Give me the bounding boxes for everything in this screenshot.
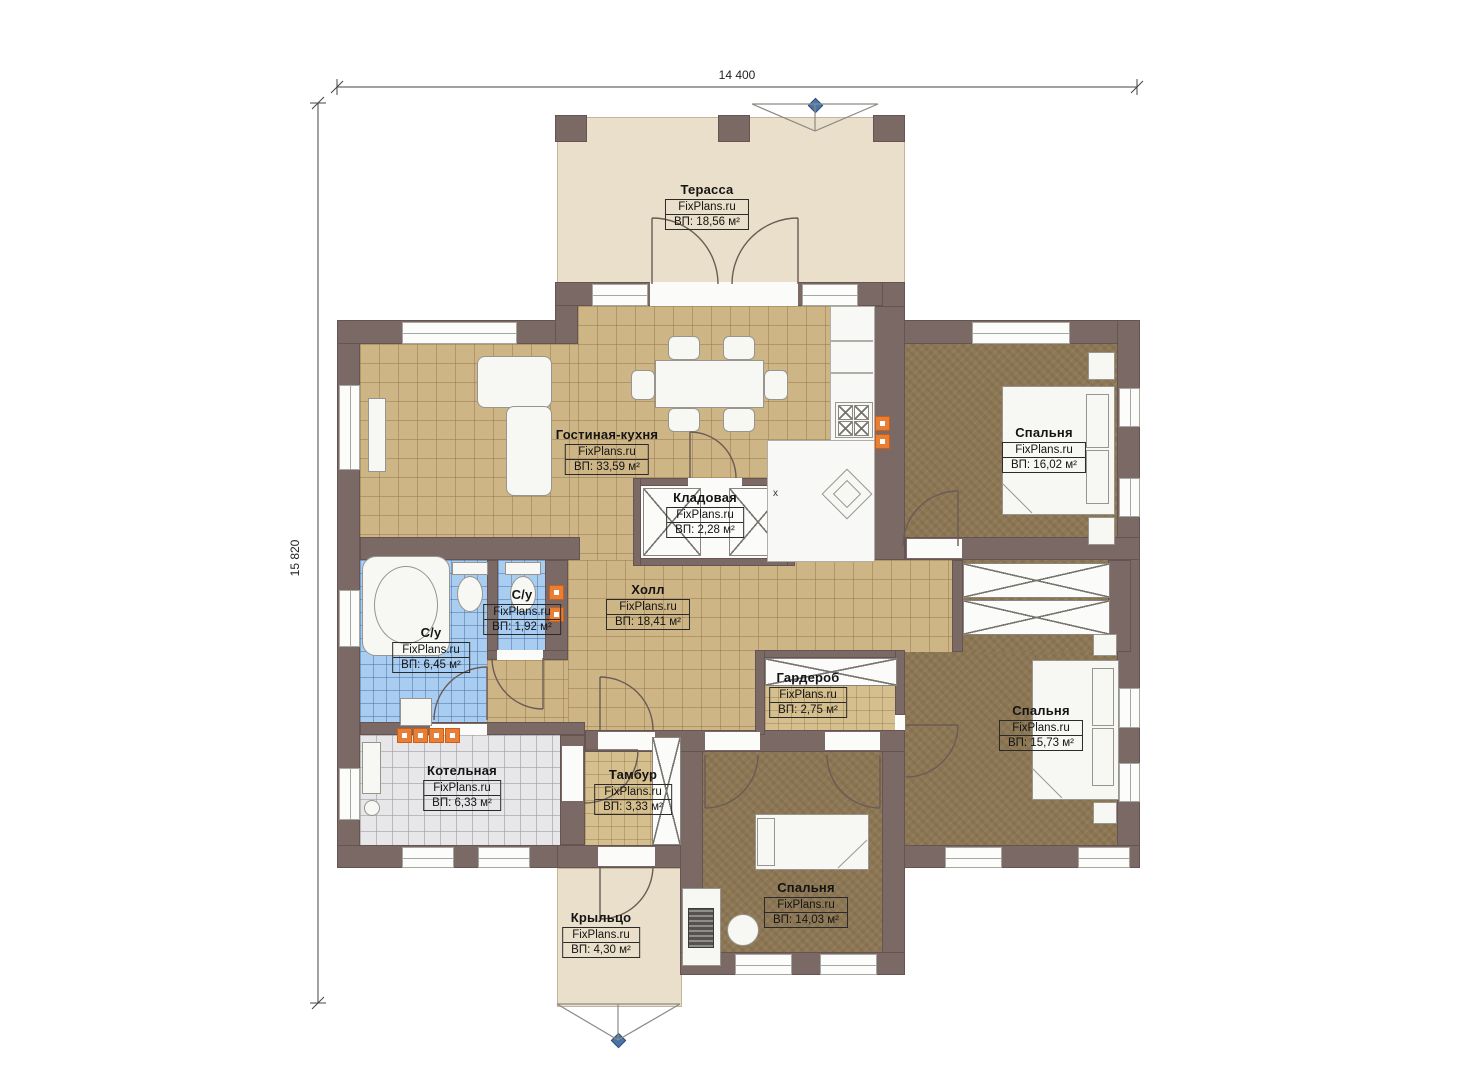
room-info-box: FixPlans.ru ВП: 16,02 м² xyxy=(1002,442,1086,473)
radiator-marker xyxy=(429,728,444,743)
room-info-box: FixPlans.ru ВП: 18,56 м² xyxy=(665,199,749,230)
room-name: Гостиная-кухня xyxy=(556,427,658,442)
stove-burner xyxy=(854,421,869,436)
wall xyxy=(755,650,765,735)
room-label-bedroom-1: Спальня FixPlans.ru ВП: 16,02 м² xyxy=(1002,425,1086,473)
door-opening xyxy=(705,732,760,750)
window xyxy=(735,954,792,975)
window xyxy=(339,385,360,470)
wall xyxy=(633,478,641,566)
door-opening xyxy=(897,717,905,730)
stove-burner xyxy=(854,405,869,420)
pillow xyxy=(1092,668,1114,726)
nightstand xyxy=(1088,352,1115,380)
hall-floor xyxy=(487,660,568,722)
room-label-vestibule: Тамбур FixPlans.ru ВП: 3,33 м² xyxy=(594,767,672,815)
room-info-box: FixPlans.ru ВП: 2,28 м² xyxy=(666,507,744,538)
room-area: ВП: 6,33 м² xyxy=(424,796,500,810)
room-area: ВП: 6,45 м² xyxy=(393,658,469,672)
marker-diamond xyxy=(611,1033,627,1049)
room-info-box: FixPlans.ru ВП: 1,92 м² xyxy=(483,604,561,635)
window xyxy=(478,847,530,868)
bathroom-sink xyxy=(400,698,432,726)
door-opening xyxy=(598,732,655,750)
stove-burner xyxy=(838,405,853,420)
room-label-hall: Холл FixPlans.ru ВП: 18,41 м² xyxy=(606,582,690,630)
computer xyxy=(688,908,714,948)
room-name: Кладовая xyxy=(666,490,744,505)
room-brand: FixPlans.ru xyxy=(1003,443,1085,458)
nightstand xyxy=(1093,634,1117,656)
room-info-box: FixPlans.ru ВП: 2,75 м² xyxy=(769,687,847,718)
room-brand: FixPlans.ru xyxy=(607,600,689,615)
toilet-tank xyxy=(505,562,541,575)
wall xyxy=(952,560,963,652)
nightstand xyxy=(1093,802,1117,824)
toilet-bowl xyxy=(457,576,483,612)
kitchen-x-marker: х xyxy=(773,488,778,499)
window xyxy=(339,590,360,647)
dining-chair xyxy=(764,370,788,400)
radiator-marker xyxy=(397,728,412,743)
room-name: Гардероб xyxy=(769,670,847,685)
room-area: ВП: 3,33 м² xyxy=(595,800,671,814)
room-info-box: FixPlans.ru ВП: 6,33 м² xyxy=(423,780,501,811)
wall xyxy=(873,306,905,560)
room-name: Котельная xyxy=(423,763,501,778)
room-label-terrace: Терасса FixPlans.ru ВП: 18,56 м² xyxy=(665,182,749,230)
room-brand: FixPlans.ru xyxy=(424,781,500,796)
dining-chair xyxy=(723,336,755,360)
room-info-box: FixPlans.ru ВП: 18,41 м² xyxy=(606,599,690,630)
window xyxy=(945,847,1002,868)
door-opening xyxy=(825,732,880,750)
pillow xyxy=(1086,450,1109,504)
tv-stand xyxy=(368,398,386,472)
wall xyxy=(337,845,580,868)
room-info-box: FixPlans.ru ВП: 4,30 м² xyxy=(562,927,640,958)
boiler xyxy=(362,742,381,794)
closet-wardrobe xyxy=(963,563,1110,598)
room-area: ВП: 14,03 м² xyxy=(765,913,847,927)
marker-diamond xyxy=(808,98,824,114)
dining-chair xyxy=(668,408,700,432)
room-name: Крыльцо xyxy=(562,910,640,925)
radiator-marker xyxy=(875,434,890,449)
pillow xyxy=(1092,728,1114,786)
room-info-box: FixPlans.ru ВП: 3,33 м² xyxy=(594,784,672,815)
room-label-bedroom-3: Спальня FixPlans.ru ВП: 14,03 м² xyxy=(764,880,848,928)
window xyxy=(402,847,454,868)
window xyxy=(1119,478,1140,517)
room-name: Спальня xyxy=(999,703,1083,718)
room-label-bedroom-2: Спальня FixPlans.ru ВП: 15,73 м² xyxy=(999,703,1083,751)
room-name: Тамбур xyxy=(594,767,672,782)
closet-wardrobe xyxy=(963,600,1110,635)
window xyxy=(339,768,360,820)
room-area: ВП: 16,02 м² xyxy=(1003,458,1085,472)
window xyxy=(1119,688,1140,728)
room-brand: FixPlans.ru xyxy=(765,898,847,913)
room-area: ВП: 2,75 м² xyxy=(770,703,846,717)
room-brand: FixPlans.ru xyxy=(484,605,560,620)
dimension-height-label: 15 820 xyxy=(288,540,302,577)
counter-divider xyxy=(830,372,873,374)
room-label-wc-small: С/у FixPlans.ru ВП: 1,92 м² xyxy=(483,587,561,635)
room-info-box: FixPlans.ru ВП: 14,03 м² xyxy=(764,897,848,928)
room-name: Терасса xyxy=(665,182,749,197)
room-brand: FixPlans.ru xyxy=(666,200,748,215)
wall xyxy=(882,735,905,975)
dining-chair xyxy=(668,336,700,360)
room-label-bathroom: С/у FixPlans.ru ВП: 6,45 м² xyxy=(392,625,470,673)
room-info-box: FixPlans.ru ВП: 33,59 м² xyxy=(565,444,649,475)
room-area: ВП: 33,59 м² xyxy=(566,460,648,474)
radiator-marker xyxy=(413,728,428,743)
pillow xyxy=(757,818,775,866)
office-chair xyxy=(727,914,759,946)
room-brand: FixPlans.ru xyxy=(393,643,469,658)
room-area: ВП: 15,73 м² xyxy=(1000,736,1082,750)
window xyxy=(972,322,1070,344)
room-area: ВП: 1,92 м² xyxy=(484,620,560,634)
room-label-pantry: Кладовая FixPlans.ru ВП: 2,28 м² xyxy=(666,490,744,538)
room-name: Спальня xyxy=(764,880,848,895)
room-info-box: FixPlans.ru ВП: 15,73 м² xyxy=(999,720,1083,751)
room-label-porch: Крыльцо FixPlans.ru ВП: 4,30 м² xyxy=(562,910,640,958)
floor-plan: 14 400 15 820 х Терасса FixPlans.ru ВП: … xyxy=(0,0,1474,1080)
room-area: ВП: 2,28 м² xyxy=(667,523,743,537)
terrace-pillar xyxy=(873,115,905,142)
window xyxy=(802,284,858,306)
window xyxy=(592,284,648,306)
terrace-pillar xyxy=(555,115,587,142)
counter-divider xyxy=(830,340,873,342)
room-area: ВП: 4,30 м² xyxy=(563,943,639,957)
toilet-tank xyxy=(452,562,488,575)
window xyxy=(1119,388,1140,427)
door-opening xyxy=(688,478,742,486)
door-opening xyxy=(497,650,543,660)
sofa xyxy=(506,406,552,496)
room-label-wardrobe: Гардероб FixPlans.ru ВП: 2,75 м² xyxy=(769,670,847,718)
room-brand: FixPlans.ru xyxy=(563,928,639,943)
radiator-marker xyxy=(875,416,890,431)
window xyxy=(1078,847,1130,868)
door-opening xyxy=(650,282,798,306)
room-brand: FixPlans.ru xyxy=(667,508,743,523)
dimension-width-label: 14 400 xyxy=(719,68,756,82)
dining-table xyxy=(655,360,764,408)
room-brand: FixPlans.ru xyxy=(595,785,671,800)
boiler-valve xyxy=(364,800,380,816)
radiator-marker xyxy=(445,728,460,743)
wall xyxy=(755,650,905,658)
room-brand: FixPlans.ru xyxy=(770,688,846,703)
room-name: С/у xyxy=(392,625,470,640)
room-label-boiler-room: Котельная FixPlans.ru ВП: 6,33 м² xyxy=(423,763,501,811)
room-area: ВП: 18,56 м² xyxy=(666,215,748,229)
door-opening xyxy=(907,539,962,558)
window xyxy=(1119,763,1140,802)
room-label-living-kitchen: Гостиная-кухня FixPlans.ru ВП: 33,59 м² xyxy=(556,427,658,475)
window xyxy=(820,954,877,975)
terrace-pillar xyxy=(718,115,750,142)
door-opening xyxy=(562,746,583,801)
window xyxy=(402,322,517,344)
room-name: С/у xyxy=(483,587,561,602)
room-brand: FixPlans.ru xyxy=(1000,721,1082,736)
room-name: Холл xyxy=(606,582,690,597)
dining-chair xyxy=(723,408,755,432)
room-name: Спальня xyxy=(1002,425,1086,440)
nightstand xyxy=(1088,517,1115,545)
pillow xyxy=(1086,394,1109,448)
stove-burner xyxy=(838,421,853,436)
door-opening xyxy=(598,847,655,866)
dining-chair xyxy=(631,370,655,400)
sofa xyxy=(477,356,552,408)
room-info-box: FixPlans.ru ВП: 6,45 м² xyxy=(392,642,470,673)
room-brand: FixPlans.ru xyxy=(566,445,648,460)
room-area: ВП: 18,41 м² xyxy=(607,615,689,629)
